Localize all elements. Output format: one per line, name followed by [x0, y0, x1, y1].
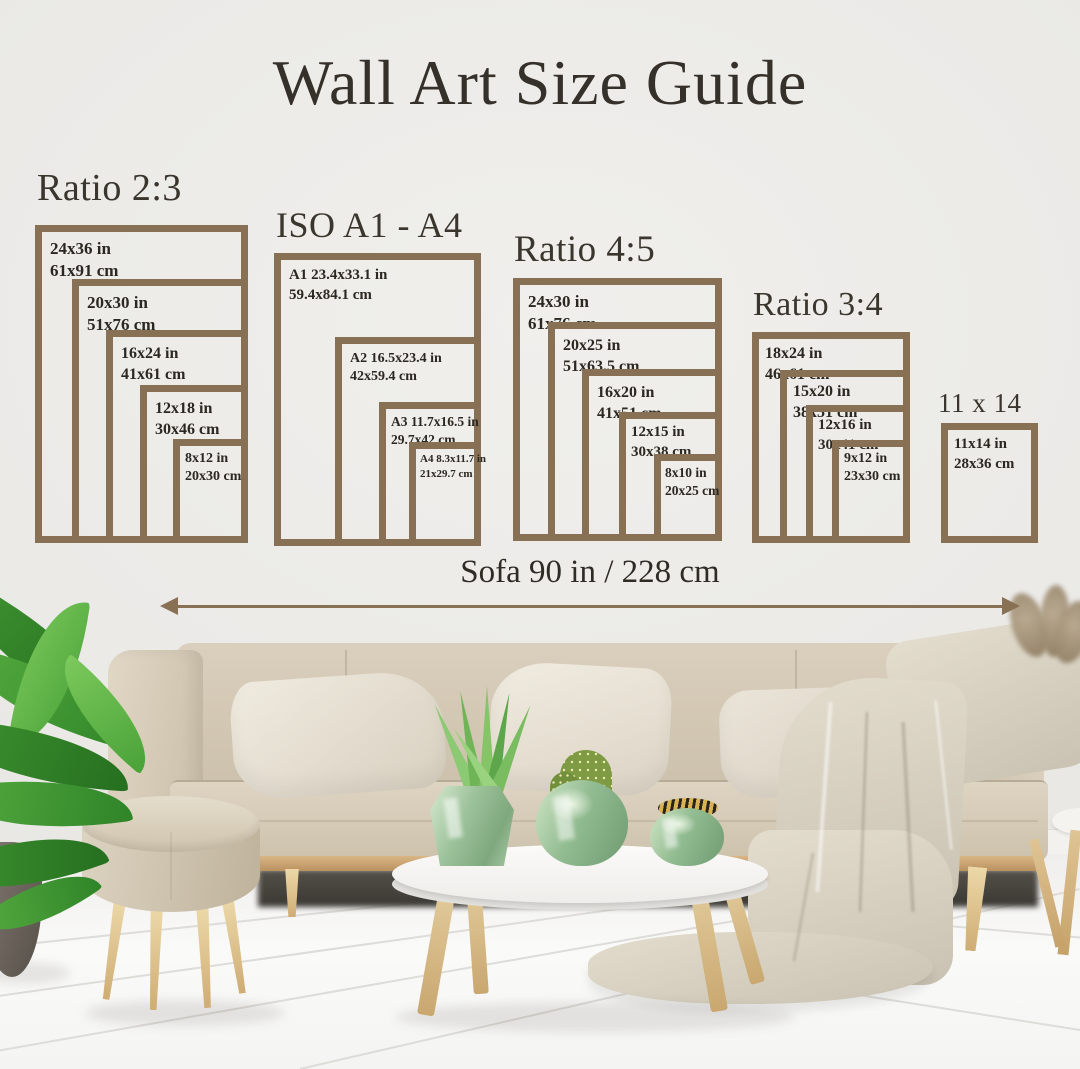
size-frame-11x14: 11x14 in28x36 cm [941, 423, 1038, 543]
frame-size-inches: 12x15 in [631, 423, 691, 443]
sofa-width-label: Sofa 90 in / 228 cm [165, 554, 1015, 591]
frame-size-cm: 42x59.4 cm [350, 368, 442, 386]
arrow-left-icon [160, 597, 178, 615]
size-frame-8x10: 8x10 in20x25 cm [654, 454, 722, 541]
frame-size-inches: A3 11.7x16.5 in [391, 413, 479, 431]
frame-size-inches: 9x12 in [844, 450, 900, 468]
size-frame-8x12: 8x12 in20x30 cm [173, 439, 248, 543]
frame-size-inches: A4 8.3x11.7 in [420, 452, 486, 467]
frame-size-inches: 24x30 in [528, 291, 596, 313]
size-frame-a4: A4 8.3x11.7 in21x29.7 cm [409, 442, 481, 546]
frame-size-inches: 16x24 in [121, 343, 185, 364]
frame-size-cm: 20x25 cm [665, 482, 719, 500]
frame-size-inches: 15x20 in [793, 381, 857, 402]
sofa-width-arrow-line [176, 605, 1004, 608]
frame-size-inches: 24x36 in [50, 238, 118, 260]
frame-size-inches: 8x10 in [665, 464, 719, 482]
frame-size-inches: 8x12 in [185, 450, 241, 468]
size-guide: Wall Art Size Guide Ratio 2:3 24x36 in61… [0, 0, 1080, 1069]
frame-size-cm: 59.4x84.1 cm [289, 286, 387, 306]
frame-size-inches: 11x14 in [954, 435, 1014, 455]
frame-size-cm: 30x46 cm [155, 419, 219, 440]
group-heading-iso-a1-a4: ISO A1 - A4 [276, 204, 463, 246]
frame-size-cm: 21x29.7 cm [420, 467, 486, 482]
group-heading-ratio-4-5: Ratio 4:5 [514, 228, 655, 271]
frame-size-inches: 12x16 in [818, 416, 878, 436]
group-heading-ratio-3-4: Ratio 3:4 [753, 286, 883, 324]
size-group-ratio-3-4: 18x24 in46x61 cm 15x20 in38x51 cm 12x16 … [752, 332, 910, 543]
size-frame-9x12: 9x12 in23x30 cm [832, 440, 910, 543]
size-group-11x14: 11x14 in28x36 cm [941, 423, 1038, 543]
frame-size-inches: 16x20 in [597, 382, 661, 403]
size-group-ratio-4-5: 24x30 in61x76 cm 20x25 in51x63.5 cm 16x2… [513, 278, 722, 541]
frame-size-inches: 12x18 in [155, 398, 219, 419]
group-heading-ratio-2-3: Ratio 2:3 [37, 166, 182, 210]
arrow-right-icon [1002, 597, 1020, 615]
size-group-iso-a1-a4: A1 23.4x33.1 in59.4x84.1 cm A2 16.5x23.4… [274, 253, 481, 546]
frame-size-inches: 20x30 in [87, 292, 155, 314]
frame-size-cm: 23x30 cm [844, 468, 900, 486]
page-title: Wall Art Size Guide [0, 46, 1080, 120]
frame-size-inches: A1 23.4x33.1 in [289, 266, 387, 286]
frame-size-inches: 18x24 in [765, 343, 829, 364]
group-heading-11x14: 11 x 14 [938, 388, 1022, 419]
size-group-ratio-2-3: 24x36 in61x91 cm 20x30 in51x76 cm 16x24 … [35, 225, 248, 543]
frame-size-inches: 20x25 in [563, 335, 639, 356]
frame-size-cm: 28x36 cm [954, 455, 1014, 475]
frame-size-inches: A2 16.5x23.4 in [350, 350, 442, 368]
wall-art-size-guide-poster: Wall Art Size Guide Ratio 2:3 24x36 in61… [0, 0, 1080, 1069]
frame-size-cm: 20x30 cm [185, 468, 241, 486]
frame-size-cm: 41x61 cm [121, 364, 185, 385]
